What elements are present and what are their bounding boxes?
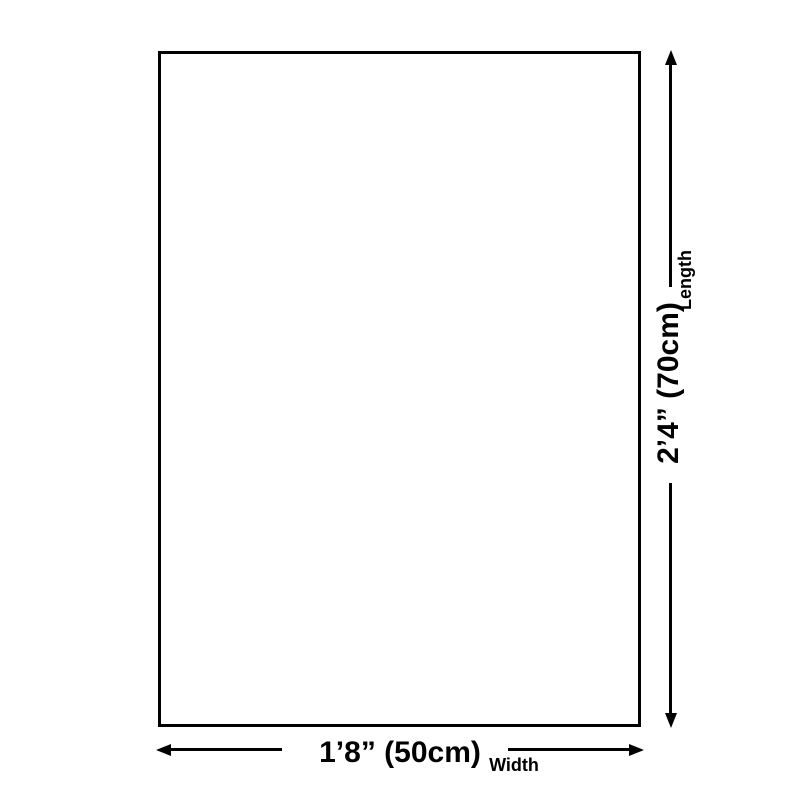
width-axis-label: Width: [489, 756, 539, 774]
product-outline: [158, 51, 641, 727]
length-axis-label: Length: [676, 250, 694, 310]
length-dimension-line-upper: [669, 63, 672, 287]
length-dimension-line-lower: [669, 483, 672, 714]
width-value: 1’8” (50cm): [319, 738, 481, 768]
arrow-down-icon: [665, 713, 677, 728]
width-dimension-line-left: [169, 748, 282, 751]
arrow-right-icon: [629, 744, 644, 756]
length-value: 2’4” (70cm): [654, 302, 684, 464]
width-dimension-line-right: [508, 748, 630, 751]
size-diagram: Length 2’4” (70cm) 1’8” (50cm) Width: [0, 0, 800, 800]
